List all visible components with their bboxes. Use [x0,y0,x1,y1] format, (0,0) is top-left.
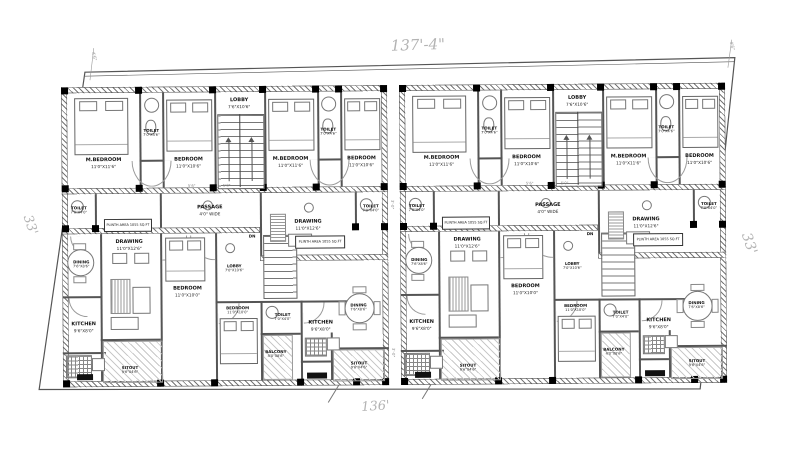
room-size: 11'0"X10'6" [685,159,714,165]
room-label-toilet: TOILET 7'0"X4'6" [658,124,675,134]
partition [552,90,555,185]
column-marker [259,86,266,93]
room-label-passage: PASSAGE 4'0" WIDE [535,202,561,214]
partition [95,194,97,228]
plinth-area-text: PLINTH AREA 1055 SQ.FT [107,224,150,228]
column-marker [92,225,99,232]
ceiling-fan-symbol [642,200,652,210]
door-arc [310,159,350,185]
staircase-up [555,112,603,187]
chair-symbol [73,276,86,283]
room-name: PASSAGE [535,202,560,208]
site-plan: 137'-4" 136' 33' 33' 4'6" 4'6" 3'-0" 3'-… [0,0,800,450]
floor-plan-screenshot: 137'-4" 136' 33' 33' 4'6" 4'6" 3'-0" 3'-… [0,0,800,450]
room-size: 9'6"X8'0" [409,325,434,331]
plinth-area-text: PLINTH AREA 1055 SQ.FT [299,240,342,244]
room-size: 7'0"X4'0" [612,315,628,320]
room-label-kitchen: KITCHEN 9'6"X8'0" [71,321,96,333]
pillow [417,99,436,109]
column-marker [718,83,725,90]
apartment-block-right: M.BEDROOM 11'0"X11'6" TOILET 7'0"X4'6" B… [399,83,727,385]
washbasin-symbol [482,95,497,110]
room-label-m-bedroom: M.BEDROOM 11'0"X11'6" [86,157,122,169]
room-size: 7'0"X4'0" [701,206,717,211]
room-size: 7'0"X10'6" [225,268,244,273]
room-size: 11'0"X10'6" [347,162,376,168]
partition [639,358,669,360]
room-size: 7'0"X4'0" [409,208,425,213]
column-marker [381,223,388,230]
room-name: KITCHEN [646,317,671,323]
room-size: 9'6"X4'6" [689,363,706,368]
bed-line [166,270,204,271]
partition [260,193,262,255]
room-size: 11'0"X10'0" [226,310,249,315]
room-label-lobby: LOBBY 7'0"X10'6" [563,261,582,271]
pillow [294,102,310,112]
stove-symbol [305,338,327,357]
ceiling-fan-symbol [304,203,314,213]
site-boundary-inner-line [85,62,735,77]
column-marker [474,182,481,189]
room-size: 7'0"X4'0" [274,317,290,322]
column-marker [401,378,408,385]
room-size: 4'0"X8'6" [265,354,286,359]
room-size: 11'0"X10'0" [564,308,587,313]
room-label-toilet: TOILET 7'0"X4'6" [481,125,498,135]
room-label-m-bedroom: M.BEDROOM 11'0"X11'6" [424,155,460,167]
column-marker [312,86,319,93]
column-marker [719,221,726,228]
room-label-toilet: TOILET 7'0"X4'6" [320,127,337,137]
room-name: KITCHEN [71,321,96,327]
room-label-toilet: TOILET 7'0"X4'6" [143,128,160,138]
bed-line [504,268,542,269]
bed-symbol [412,96,466,153]
room-name: LOBBY [568,95,586,101]
apartment-block-left: M.BEDROOM 11'0"X11'6" TOILET 7'0"X4'6" B… [61,85,389,387]
passage-tick: 5'6" [188,183,196,188]
pillow [364,101,377,111]
pillow [530,100,546,110]
room-label-m-bedroom: M.BEDROOM 11'0"X11'6" [611,153,647,165]
partition [301,360,331,362]
passage-tick: 5'6" [526,181,534,186]
door-arc [406,296,425,315]
room-size: 11'0"X10'6" [174,163,203,169]
bed-symbol [503,235,543,279]
column-marker [62,225,69,232]
room-size: 7'6"X8'6" [350,308,366,313]
column-marker [62,185,69,192]
bed-line [559,351,595,352]
partition [498,191,500,225]
chair-symbol [352,286,366,293]
room-label-toilet: TOILET 7'0"X4'0" [701,201,718,211]
room-size: 9'6"X4'6" [122,370,139,375]
room-label-dining: DINING 7'6"X8'6" [411,257,428,267]
room-size: 11'0"X12'6" [115,245,142,251]
column-marker [548,182,555,189]
column-marker [381,183,388,190]
stair-arrow-tip [586,132,592,140]
dimension-bottom: 136' [361,398,390,415]
column-marker [61,87,68,94]
pillow [348,101,361,111]
coffee-table-symbol [132,287,150,314]
chair-symbol [690,284,704,291]
room-size: 7'0"X4'6" [658,129,674,134]
ceiling-fan-symbol [563,241,573,251]
room-size: 7'0"X4'6" [320,132,336,137]
bed-line [413,142,465,143]
room-size: 7'0"X4'0" [71,211,87,216]
room-label-toilet: TOILET 7'0"X4'0" [274,312,291,322]
down-stair-label: DN [587,231,594,236]
block-gap-dimension-upper: 3'-0" [390,200,395,210]
room-label-lobby: LOBBY 7'6"X10'6" [228,97,250,109]
room-label-toilet: TOILET 7'0"X4'0" [363,203,380,213]
plinth-area-text: PLINTH AREA 1055 SQ.FT [444,221,487,225]
stove-symbol [643,335,665,354]
bed-symbol [166,99,212,151]
column-marker [297,379,304,386]
room-label-passage: PASSAGE 4'0" WIDE [197,204,223,216]
bed-symbol [74,98,128,155]
column-marker [650,83,657,90]
chair-symbol [112,253,127,264]
plinth-area-box: PLINTH AREA 1055 SQ.FT [104,219,152,232]
column-marker [597,84,604,91]
partition [401,350,444,352]
column-marker [651,181,658,188]
bed-symbol [344,98,380,150]
plinth-area-box: PLINTH AREA 1055 SQ.FT [295,235,345,248]
column-marker [690,221,697,228]
room-label-balcony: BALCONY 4'0"X8'6" [603,347,624,357]
stair-arrow-tip [248,134,254,142]
room-label-drawing: DRAWING 11'0"X12'6" [632,216,659,228]
room-label-kitchen: KITCHEN 9'6"X8'0" [646,317,671,329]
room-name: BEDROOM [173,285,202,291]
column-marker [473,84,480,91]
pillow [169,241,183,251]
partition [355,192,357,226]
room-label-dining: DINING 7'6"X8'6" [688,300,705,310]
room-label-kitchen: KITCHEN 9'6"X8'0" [308,319,333,331]
column-marker [63,380,70,387]
bed-line [505,138,549,139]
washbasin-symbol [659,94,674,109]
dn-text: DN [587,231,594,236]
bed-symbol [220,318,258,364]
room-name: BEDROOM [511,283,540,289]
room-name: DRAWING [453,236,480,242]
chair-symbol [353,323,367,330]
bed-line [167,140,211,141]
column-marker [135,87,142,94]
washbasin-symbol [144,98,159,113]
entry-step [77,374,93,380]
room-label-bedroom: BEDROOM 11'0"X10'6" [347,155,376,167]
sofa-symbol [110,279,130,314]
room-size: 9'6"X4'6" [351,366,368,371]
room-size: 4'0" WIDE [197,211,222,217]
room-label-sitout: SITOUT 9'6"X4'6" [351,360,368,370]
room-label-bedroom: BEDROOM 11'0"X10'6" [512,154,541,166]
room-name: M.BEDROOM [611,153,647,159]
room-size: 11'0"X11'6" [611,160,647,166]
bed-line [345,139,379,140]
pillow [507,238,521,248]
room-label-bedroom: BEDROOM 11'0"X10'0" [511,283,540,295]
room-label-bedroom: BEDROOM 11'0"X10'6" [685,153,714,165]
room-label-drawing: DRAWING 11'0"X12'6" [294,219,321,231]
pillow [170,102,186,112]
room-size: 9'6"X8'0" [308,326,333,332]
column-marker [210,184,217,191]
room-size: 11'0"X10'0" [511,290,540,296]
block-gap-dimension-lower: 3'-0" [391,348,396,358]
column-marker [719,181,726,188]
room-label-balcony: BALCONY 4'0"X8'6" [265,349,286,359]
pillow [223,321,237,331]
room-label-bedroom: BEDROOM 11'0"X10'6" [174,156,203,168]
room-size: 11'0"X10'0" [173,292,202,298]
sink-symbol [92,358,105,371]
dn-text: DN [249,233,256,238]
bed-symbol [268,99,314,151]
door-arc [648,157,688,183]
pillow [632,99,648,109]
bed-line [75,144,127,145]
sink-symbol [327,337,340,350]
room-size: 11'0"X11'6" [273,162,309,168]
room-size: 7'0"X4'6" [143,133,159,138]
room-name: BEDROOM [174,156,203,162]
bed-line [221,353,257,354]
passage-tick: 5'0" [561,180,569,185]
room-name: BEDROOM [512,154,541,160]
room-size: 7'6"X8'6" [73,264,89,269]
passage-tick: 5'0" [223,183,231,188]
chair-symbol [450,251,465,262]
room-label-drawing: DRAWING 11'0"X12'6" [453,236,480,248]
plinth-area-text: PLINTH AREA 1055 SQ.FT [637,238,680,242]
room-name: DRAWING [115,239,142,245]
room-name: M.BEDROOM [424,155,460,161]
pillow [79,101,98,111]
sink-symbol [430,356,443,369]
bed-symbol [504,97,550,149]
bed-line [683,137,717,138]
room-size: 7'6"X8'6" [411,262,427,267]
partition [433,192,435,226]
pillow [187,240,201,250]
down-stair-label: DN [249,233,256,238]
wall-left [399,85,407,385]
pillow [105,101,124,111]
stair-arrow-tip [225,134,231,142]
room-name: LOBBY [230,97,248,103]
entry-step [415,372,431,378]
bed-symbol [558,316,596,362]
door-arc [470,158,510,184]
plinth-area-box: PLINTH AREA 1055 SQ.FT [442,216,490,229]
pillow [702,99,715,109]
column-marker [352,223,359,230]
room-name: BEDROOM [685,153,714,159]
column-marker [335,85,342,92]
room-name: DRAWING [632,216,659,222]
room-size: 11'0"X12'6" [294,225,321,231]
room-name: KITCHEN [409,319,434,325]
column-marker [400,183,407,190]
room-label-sitout: SITOUT 9'6"X4'6" [689,358,706,368]
room-name: M.BEDROOM [86,157,122,163]
pillow [686,99,699,109]
bed-symbol [682,96,718,148]
dimension-top: 137'-4" [390,35,445,55]
entry-step [645,370,665,376]
room-size: 7'0"X4'0" [363,208,379,213]
room-size: 7'6"X10'6" [228,104,250,110]
room-size: 11'0"X11'6" [86,163,122,169]
room-label-dining: DINING 7'6"X8'6" [73,259,90,269]
room-label-drawing: DRAWING 11'0"X12'6" [115,239,142,251]
room-size: 9'6"X8'0" [71,328,96,334]
column-marker [549,377,556,384]
room-size: 11'0"X11'6" [424,161,460,167]
sitout-area [441,338,501,380]
room-label-bedroom: BEDROOM 11'0"X10'0" [564,303,587,313]
partition [598,191,600,253]
chair-symbol [411,274,424,281]
partition [63,352,106,354]
staircase-up [217,114,265,189]
column-marker [673,83,680,90]
pillow [579,319,593,329]
bed-symbol [165,237,205,281]
partition [214,92,217,187]
bed-line [269,140,313,141]
room-label-sitout: SITOUT 9'6"X4'6" [122,365,139,375]
room-name: DRAWING [294,219,321,225]
column-marker [209,86,216,93]
ceiling-fan-symbol [225,243,235,253]
room-label-lobby: LOBBY 7'6"X10'6" [566,95,588,107]
room-name: M.BEDROOM [273,156,309,162]
pillow [525,238,539,248]
coffee-table-symbol [470,284,488,311]
chair-symbol [472,250,487,261]
chair-symbol [374,301,381,315]
wall-left [61,87,69,387]
sink-symbol [665,335,678,348]
pillow [610,99,626,109]
sofa-symbol [449,314,477,327]
pillow [443,99,462,109]
column-marker [430,223,437,230]
room-size: 4'0" WIDE [535,208,560,214]
column-marker [380,85,387,92]
column-marker [136,185,143,192]
sofa-symbol [448,277,468,312]
room-label-toilet: TOILET 7'0"X4'0" [612,310,629,320]
sofa-symbol [608,211,624,239]
column-marker [547,84,554,91]
column-marker [211,379,218,386]
washbasin-symbol [321,96,336,111]
room-size: 7'0"X10'6" [563,266,582,271]
partition [160,194,162,228]
room-size: 7'6"X10'6" [566,101,588,107]
chair-symbol [134,253,149,264]
plinth-area-box: PLINTH AREA 1055 SQ.FT [633,233,683,246]
column-marker [400,223,407,230]
entry-step [307,373,327,379]
bed-line [607,137,651,138]
pillow [508,100,524,110]
room-label-toilet: TOILET 7'0"X4'0" [71,205,88,215]
room-label-bedroom: BEDROOM 11'0"X10'0" [226,305,249,315]
room-name: BEDROOM [347,155,376,161]
room-size: 7'0"X4'6" [481,131,497,136]
room-label-sitout: SITOUT 9'6"X4'6" [460,363,477,373]
room-name: PASSAGE [197,204,222,210]
door-arc [69,298,88,317]
sofa-symbol [270,214,286,242]
room-label-lobby: LOBBY 7'0"X10'6" [225,263,244,273]
room-size: 11'0"X12'6" [453,243,480,249]
pillow [272,102,288,112]
pillow [192,102,208,112]
room-label-kitchen: KITCHEN 9'6"X8'0" [409,319,434,331]
room-name: KITCHEN [308,319,333,325]
column-marker [313,184,320,191]
room-label-dining: DINING 7'6"X8'6" [350,302,367,312]
pillow [561,319,575,329]
room-size: 7'6"X8'6" [688,305,704,310]
sofa-symbol [111,317,139,330]
partition [693,190,695,224]
column-marker [635,376,642,383]
bed-symbol [606,96,652,148]
room-label-bedroom: BEDROOM 11'0"X10'0" [173,285,202,297]
room-label-m-bedroom: M.BEDROOM 11'0"X11'6" [273,156,309,168]
chair-symbol [691,321,705,328]
pillow [241,321,255,331]
room-size: 11'0"X12'6" [632,223,659,229]
room-size: 4'0"X8'6" [603,352,624,357]
room-label-toilet: TOILET 7'0"X4'0" [409,203,426,213]
stair-arrow-tip [563,132,569,140]
room-size: 9'6"X8'0" [646,324,671,330]
room-size: 11'0"X10'6" [512,161,541,167]
sitout-area [103,341,163,383]
room-size: 9'6"X4'6" [460,368,477,373]
column-marker [399,85,406,92]
door-arc [132,161,172,187]
